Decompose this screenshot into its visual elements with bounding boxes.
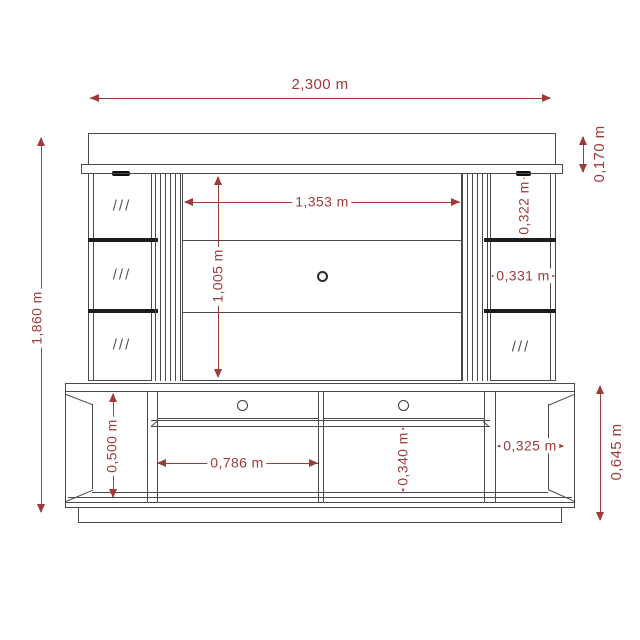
- dim-cabinet-interior-height-label: 0,500 m: [104, 416, 119, 475]
- left-divider-b: [157, 392, 158, 502]
- cabinet-floor-inner: [92, 492, 548, 493]
- right-divider-a: [484, 392, 485, 502]
- cabinet-top-inner-line: [65, 391, 575, 392]
- plinth: [78, 507, 562, 523]
- dim-panel-width-label: 1,353 m: [292, 194, 351, 209]
- right-divider-b: [495, 392, 496, 502]
- dim-lower-compartment-height-label: 0,340 m: [395, 429, 410, 488]
- right-tower-shelf-2: [484, 309, 556, 313]
- dim-total-height-label: 1,860 m: [29, 288, 44, 347]
- technical-drawing-canvas: /// /// /// /// 2,300 m: [0, 0, 640, 640]
- dim-crown-height-label: 0,170 m: [592, 123, 609, 186]
- right-slat-columns: [462, 173, 488, 381]
- left-slat-columns: [155, 173, 181, 381]
- dim-right-upper-section-label: 0,322 m: [516, 178, 531, 237]
- dim-panel-height-label: 1,005 m: [210, 246, 225, 305]
- glass-hatch-icon: ///: [113, 198, 132, 215]
- cable-hole: [317, 271, 328, 282]
- left-tower-inner-edge: [93, 173, 94, 381]
- right-drawer-knob: [398, 400, 409, 411]
- dim-left-compartment-width-label: 0,786 m: [207, 455, 266, 470]
- left-drawer-bottom-edge: [157, 418, 318, 419]
- glass-hatch-icon: ///: [512, 339, 531, 356]
- panel-seam-1: [182, 240, 462, 241]
- dim-right-middle-section-label: 0,331 m: [493, 268, 552, 283]
- center-divider-a: [318, 392, 319, 502]
- left-tower-shelf-2: [88, 309, 158, 313]
- dim-cabinet-total-height-label: 0,645 m: [609, 421, 626, 484]
- right-drawer-bottom-edge: [323, 418, 484, 419]
- center-divider-b: [323, 392, 324, 502]
- glass-hatch-icon: ///: [113, 267, 132, 284]
- glass-hatch-icon: ///: [113, 337, 132, 354]
- dim-total-width-label: 2,300 m: [289, 77, 352, 94]
- cabinet-left-inner-panel: [92, 404, 93, 489]
- dim-right-compartment-width-label: 0,325 m: [500, 438, 559, 453]
- cabinet-floor-front: [68, 497, 572, 498]
- left-tower-shelf-1: [88, 238, 158, 242]
- cabinet-shelf: [151, 420, 490, 427]
- left-divider-a: [147, 392, 148, 502]
- panel-seam-2: [182, 312, 462, 313]
- crown-top: [88, 133, 556, 165]
- left-drawer-knob: [237, 400, 248, 411]
